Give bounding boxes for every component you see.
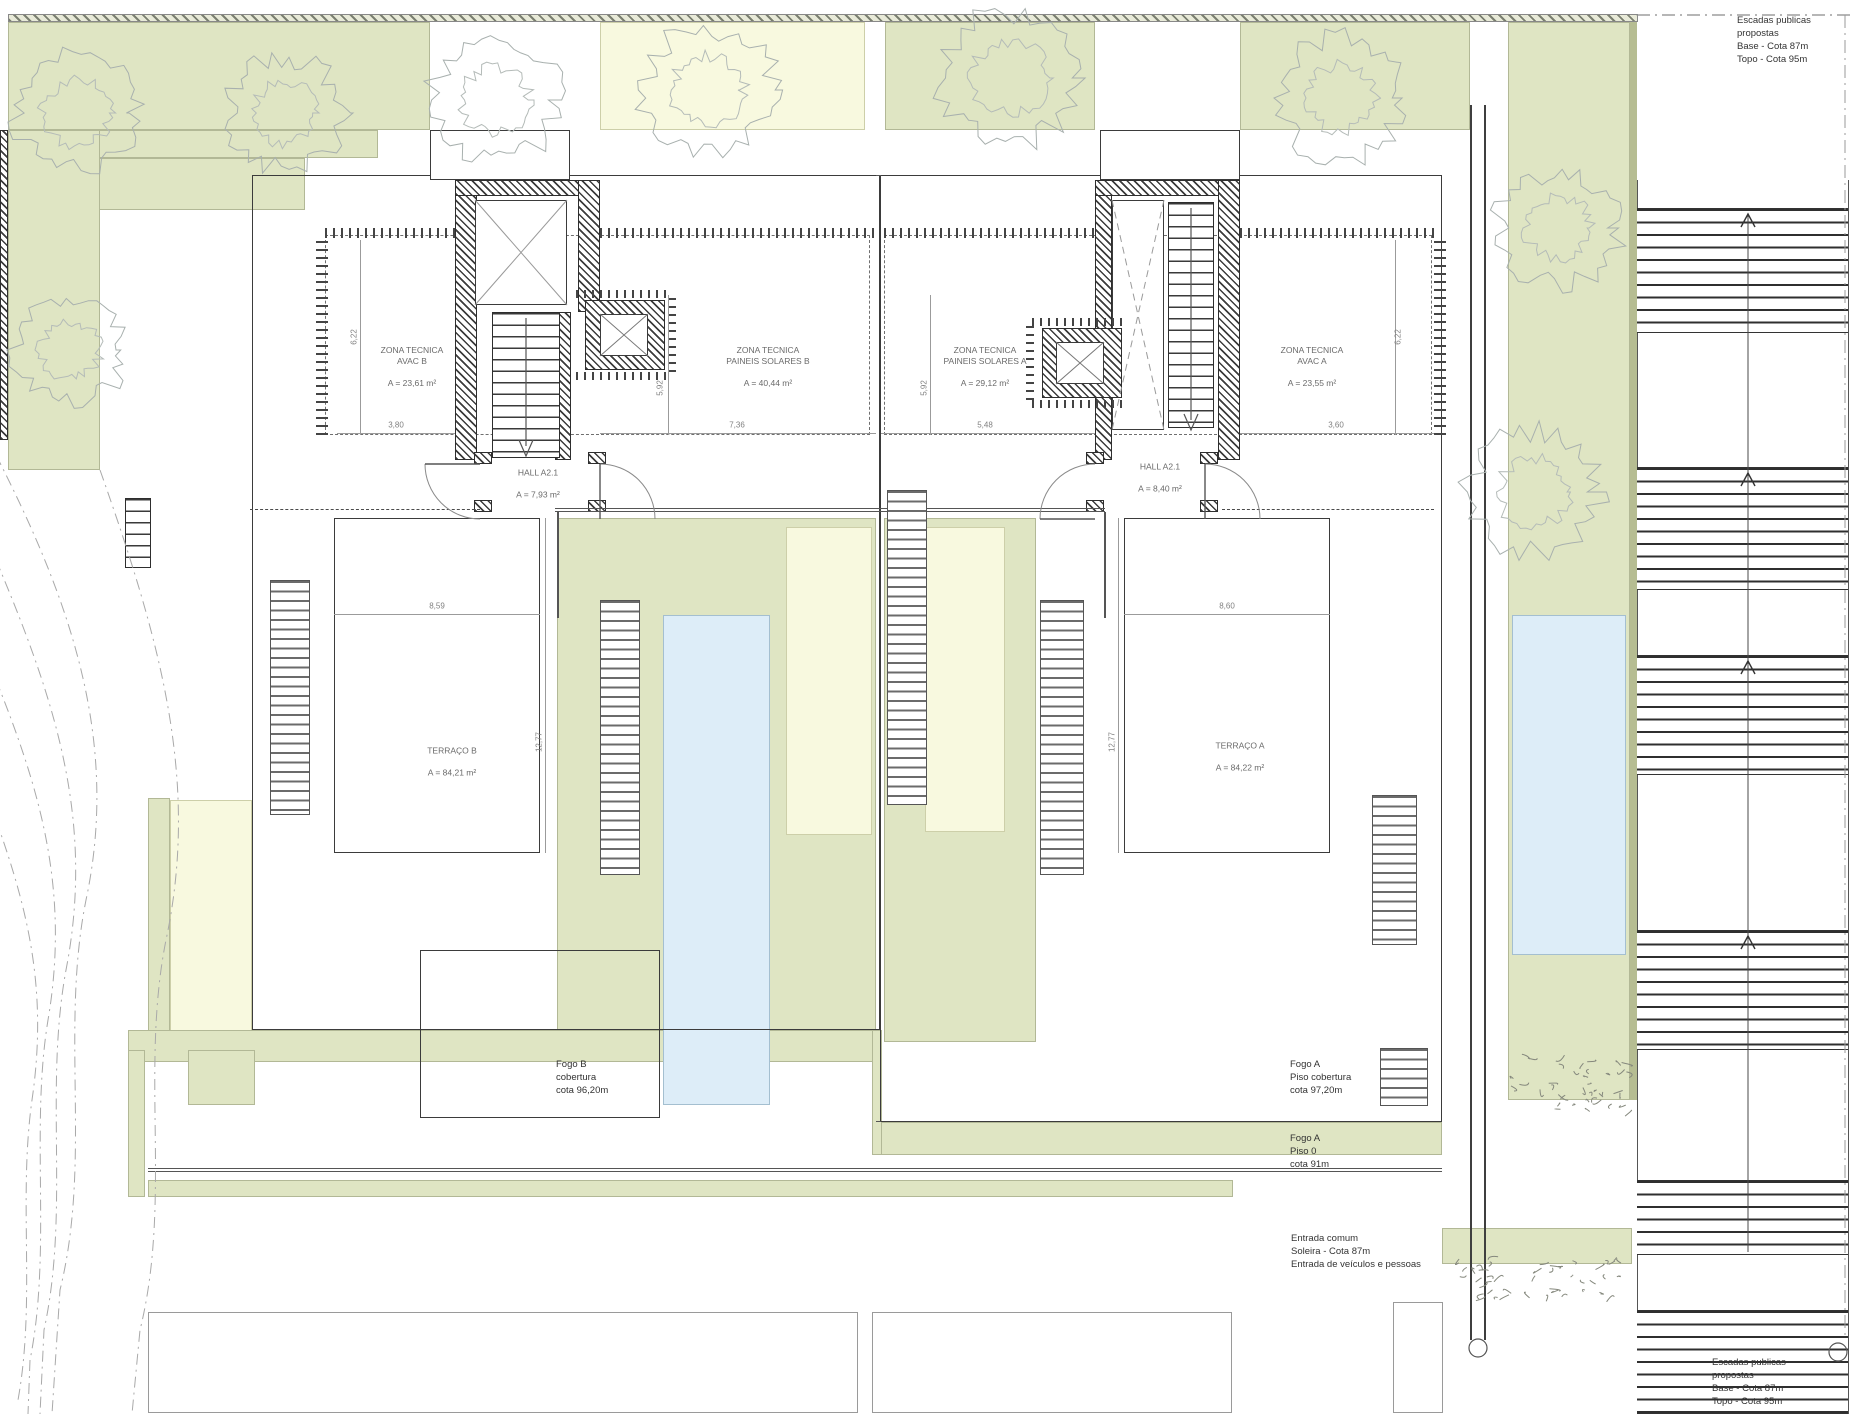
room-area: A = 8,40 m² — [1138, 484, 1182, 495]
dimline-8-59 — [334, 614, 540, 615]
shaft-a-tick-left — [1026, 326, 1034, 400]
hall-dash-left — [250, 509, 480, 511]
stairs-a — [1168, 202, 1214, 428]
room-label-paineis-solares-a: ZONA TECNICA PAINEIS SOLARES A A = 29,12… — [944, 334, 1027, 400]
room-name: ZONA TECNICA AVAC B — [381, 345, 444, 367]
louvre-terrace-a-right — [1372, 795, 1417, 945]
unit-divider-wall — [876, 175, 881, 1122]
dimline-3-60 — [1240, 433, 1434, 434]
louvre-terrace-b-right — [600, 600, 640, 875]
hall-dash-right — [1222, 509, 1434, 511]
note-fogo-b-cobertura: Fogo B cobertura cota 96,20m — [556, 1058, 608, 1097]
louvre-terrace-a-left — [1040, 600, 1084, 875]
tick-fringe-left — [316, 240, 328, 435]
terrace-box-a — [1124, 518, 1330, 853]
dim-12-77-left: 12,77 — [535, 732, 544, 752]
tick-fringe-top-2 — [600, 228, 876, 238]
garden-band-entrance — [148, 1180, 1233, 1197]
retaining-strip-left — [0, 130, 8, 440]
room-area: A = 23,61 m² — [381, 378, 444, 389]
tick-fringe-top-4 — [1240, 228, 1434, 238]
room-name: HALL A2.1 — [516, 467, 560, 478]
room-area: A = 84,22 m² — [1215, 763, 1264, 774]
dim-5-92-right: 5,92 — [920, 380, 929, 396]
fogo-b-floor-box — [420, 950, 660, 1118]
pool-a — [1512, 615, 1626, 955]
dimline-12-77-r — [1118, 518, 1119, 853]
note-fogo-a-piso-0: Fogo A Piso 0 cota 91m — [1290, 1132, 1329, 1171]
hall-a-stub-4 — [1200, 500, 1218, 512]
louvre-fogo-a — [1380, 1048, 1428, 1106]
garden-left-strip — [8, 130, 100, 470]
dimline-3-80 — [337, 433, 455, 434]
hall-b-stub-3 — [588, 452, 606, 464]
dimline-6-22-l — [360, 240, 361, 435]
room-name: TERRAÇO B — [427, 745, 477, 756]
room-label-hall-b: HALL A2.1 A = 7,93 m² — [516, 456, 560, 511]
stair-tower-a — [1100, 130, 1240, 180]
public-stairs-flight-2 — [1637, 467, 1848, 590]
room-label-paineis-solares-b: ZONA TECNICA PAINEIS SOLARES B A = 40,44… — [726, 334, 809, 400]
stairs-b — [492, 312, 560, 458]
core-b-wall-left — [455, 180, 477, 460]
garden-band-1 — [8, 22, 430, 130]
louvre-terrace-b-left — [270, 580, 310, 815]
dim-8-60: 8,60 — [1219, 602, 1235, 611]
entrance-line — [148, 1168, 1442, 1172]
garden-frame-left — [148, 798, 170, 1062]
room-area: A = 7,93 m² — [516, 490, 560, 501]
room-name: ZONA TECNICA PAINEIS SOLARES A — [944, 345, 1027, 367]
dim-5-92-left: 5,92 — [656, 380, 665, 396]
garden-yellow-low-left — [170, 800, 252, 1035]
shaft-a-tick-bottom — [1032, 400, 1124, 408]
note-entrada-comum: Entrada comum Soleira - Cota 87m Entrada… — [1291, 1232, 1421, 1271]
dim-8-59: 8,59 — [429, 602, 445, 611]
dimline-12-77-l — [545, 518, 546, 853]
floor-plan-canvas: ZONA TECNICA AVAC B A = 23,61 m² ZONA TE… — [0, 0, 1852, 1414]
dim-6-22-left: 6,22 — [350, 329, 359, 345]
driveway-box-1 — [148, 1312, 858, 1413]
room-area: A = 84,21 m² — [427, 768, 477, 779]
handrail — [1470, 105, 1486, 1340]
dimline-7-36 — [600, 433, 876, 434]
public-stairs-flight-1 — [1637, 208, 1848, 333]
dimline-8-60 — [1124, 614, 1330, 615]
room-area: A = 23,55 m² — [1281, 378, 1344, 389]
dim-12-77-right: 12,77 — [1108, 732, 1117, 752]
room-label-hall-a: HALL A2.1 A = 8,40 m² — [1138, 450, 1182, 505]
terrace-box-b — [334, 518, 540, 853]
shaft-b-tick-right — [668, 298, 676, 372]
shaft-b — [600, 314, 648, 356]
hall-a-stub-1 — [1086, 452, 1104, 464]
hall-a-stub-3 — [1200, 452, 1218, 464]
garden-block-low — [188, 1050, 255, 1105]
room-name: ZONA TECNICA AVAC A — [1281, 345, 1344, 367]
dimline-5-92-l — [668, 295, 669, 435]
room-label-zona-tecnica-avac-b: ZONA TECNICA AVAC B A = 23,61 m² — [381, 334, 444, 400]
shaft-a-tick-top — [1032, 318, 1124, 326]
room-label-terraco-b: TERRAÇO B A = 84,21 m² — [427, 734, 477, 789]
driveway-box-2 — [872, 1312, 1232, 1413]
public-stairs-flight-3 — [1637, 655, 1848, 775]
garden-band-3 — [1240, 22, 1470, 130]
core-a-wall-right — [1218, 180, 1240, 460]
dim-7-36: 7,36 — [729, 421, 745, 430]
stair-tower-b — [430, 130, 570, 180]
hall-drop-b — [557, 512, 559, 618]
hall-drop-a — [1104, 512, 1106, 618]
tick-fringe-right — [1434, 240, 1446, 435]
garden-strip-right-edge — [1630, 22, 1637, 1100]
garden-band-yellow — [600, 22, 865, 130]
garden-band-low-a — [880, 1122, 1442, 1155]
dim-3-60: 3,60 — [1328, 421, 1344, 430]
room-name: TERRAÇO A — [1215, 740, 1264, 751]
shaft-b-tick-top — [576, 290, 668, 298]
dim-3-80: 3,80 — [388, 421, 404, 430]
dimline-5-48 — [881, 433, 1095, 434]
public-stairs-flight-4 — [1637, 930, 1848, 1050]
retaining-strip-top — [8, 14, 1638, 22]
note-fogo-a-piso-cobertura: Fogo A Piso cobertura cota 97,20m — [1290, 1058, 1351, 1097]
tick-fringe-top-3 — [884, 228, 1095, 238]
room-name: ZONA TECNICA PAINEIS SOLARES B — [726, 345, 809, 367]
shaft-a — [1056, 342, 1104, 384]
public-stairs-flight-5 — [1637, 1180, 1848, 1255]
garden-band-2 — [885, 22, 1095, 130]
room-area: A = 29,12 m² — [944, 378, 1027, 389]
room-label-zona-tecnica-avac-a: ZONA TECNICA AVAC A A = 23,55 m² — [1281, 334, 1344, 400]
generated-geometry-layer — [0, 0, 1852, 1414]
note-escadas-publicas-bottom: Escadas publicas propostas Base - Cota 8… — [1712, 1356, 1786, 1408]
hall-line-b — [555, 508, 881, 512]
tick-fringe-top-1 — [325, 228, 455, 238]
dim-6-22-right: 6,22 — [1394, 329, 1403, 345]
room-name: HALL A2.1 — [1138, 461, 1182, 472]
driveway-box-3 — [1393, 1302, 1443, 1413]
public-stairs-edge-right — [1848, 180, 1849, 1414]
room-label-terraco-a: TERRAÇO A A = 84,22 m² — [1215, 729, 1264, 784]
shaft-b-tick-bottom — [576, 372, 668, 380]
room-area: A = 40,44 m² — [726, 378, 809, 389]
hall-b-stub-1 — [474, 452, 492, 464]
site-steps-left — [125, 498, 151, 568]
elevator-b — [475, 200, 567, 305]
dim-5-48: 5,48 — [977, 421, 993, 430]
note-escadas-publicas-top: Escadas publicas propostas Base - Cota 8… — [1737, 14, 1811, 66]
louvre-courtyard — [887, 490, 927, 805]
garden-strip-low-left — [128, 1050, 145, 1197]
dimline-5-92-r — [930, 295, 931, 435]
